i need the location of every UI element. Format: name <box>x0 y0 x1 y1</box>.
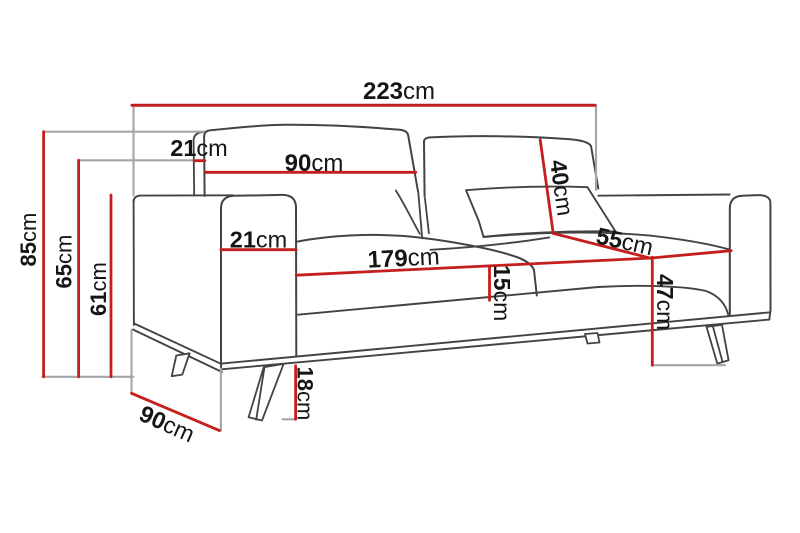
svg-text:65cm: 65cm <box>52 235 77 289</box>
svg-text:223cm: 223cm <box>363 78 435 105</box>
svg-text:15cm: 15cm <box>489 265 515 321</box>
svg-text:21cm: 21cm <box>230 227 287 253</box>
svg-text:55cm: 55cm <box>594 222 656 260</box>
svg-text:47cm: 47cm <box>652 274 678 330</box>
svg-text:21cm: 21cm <box>170 135 227 161</box>
svg-text:85cm: 85cm <box>16 213 41 267</box>
svg-text:90cm: 90cm <box>285 150 344 177</box>
svg-text:18cm: 18cm <box>293 367 318 421</box>
svg-text:179cm: 179cm <box>367 243 440 273</box>
svg-text:61cm: 61cm <box>86 262 111 316</box>
